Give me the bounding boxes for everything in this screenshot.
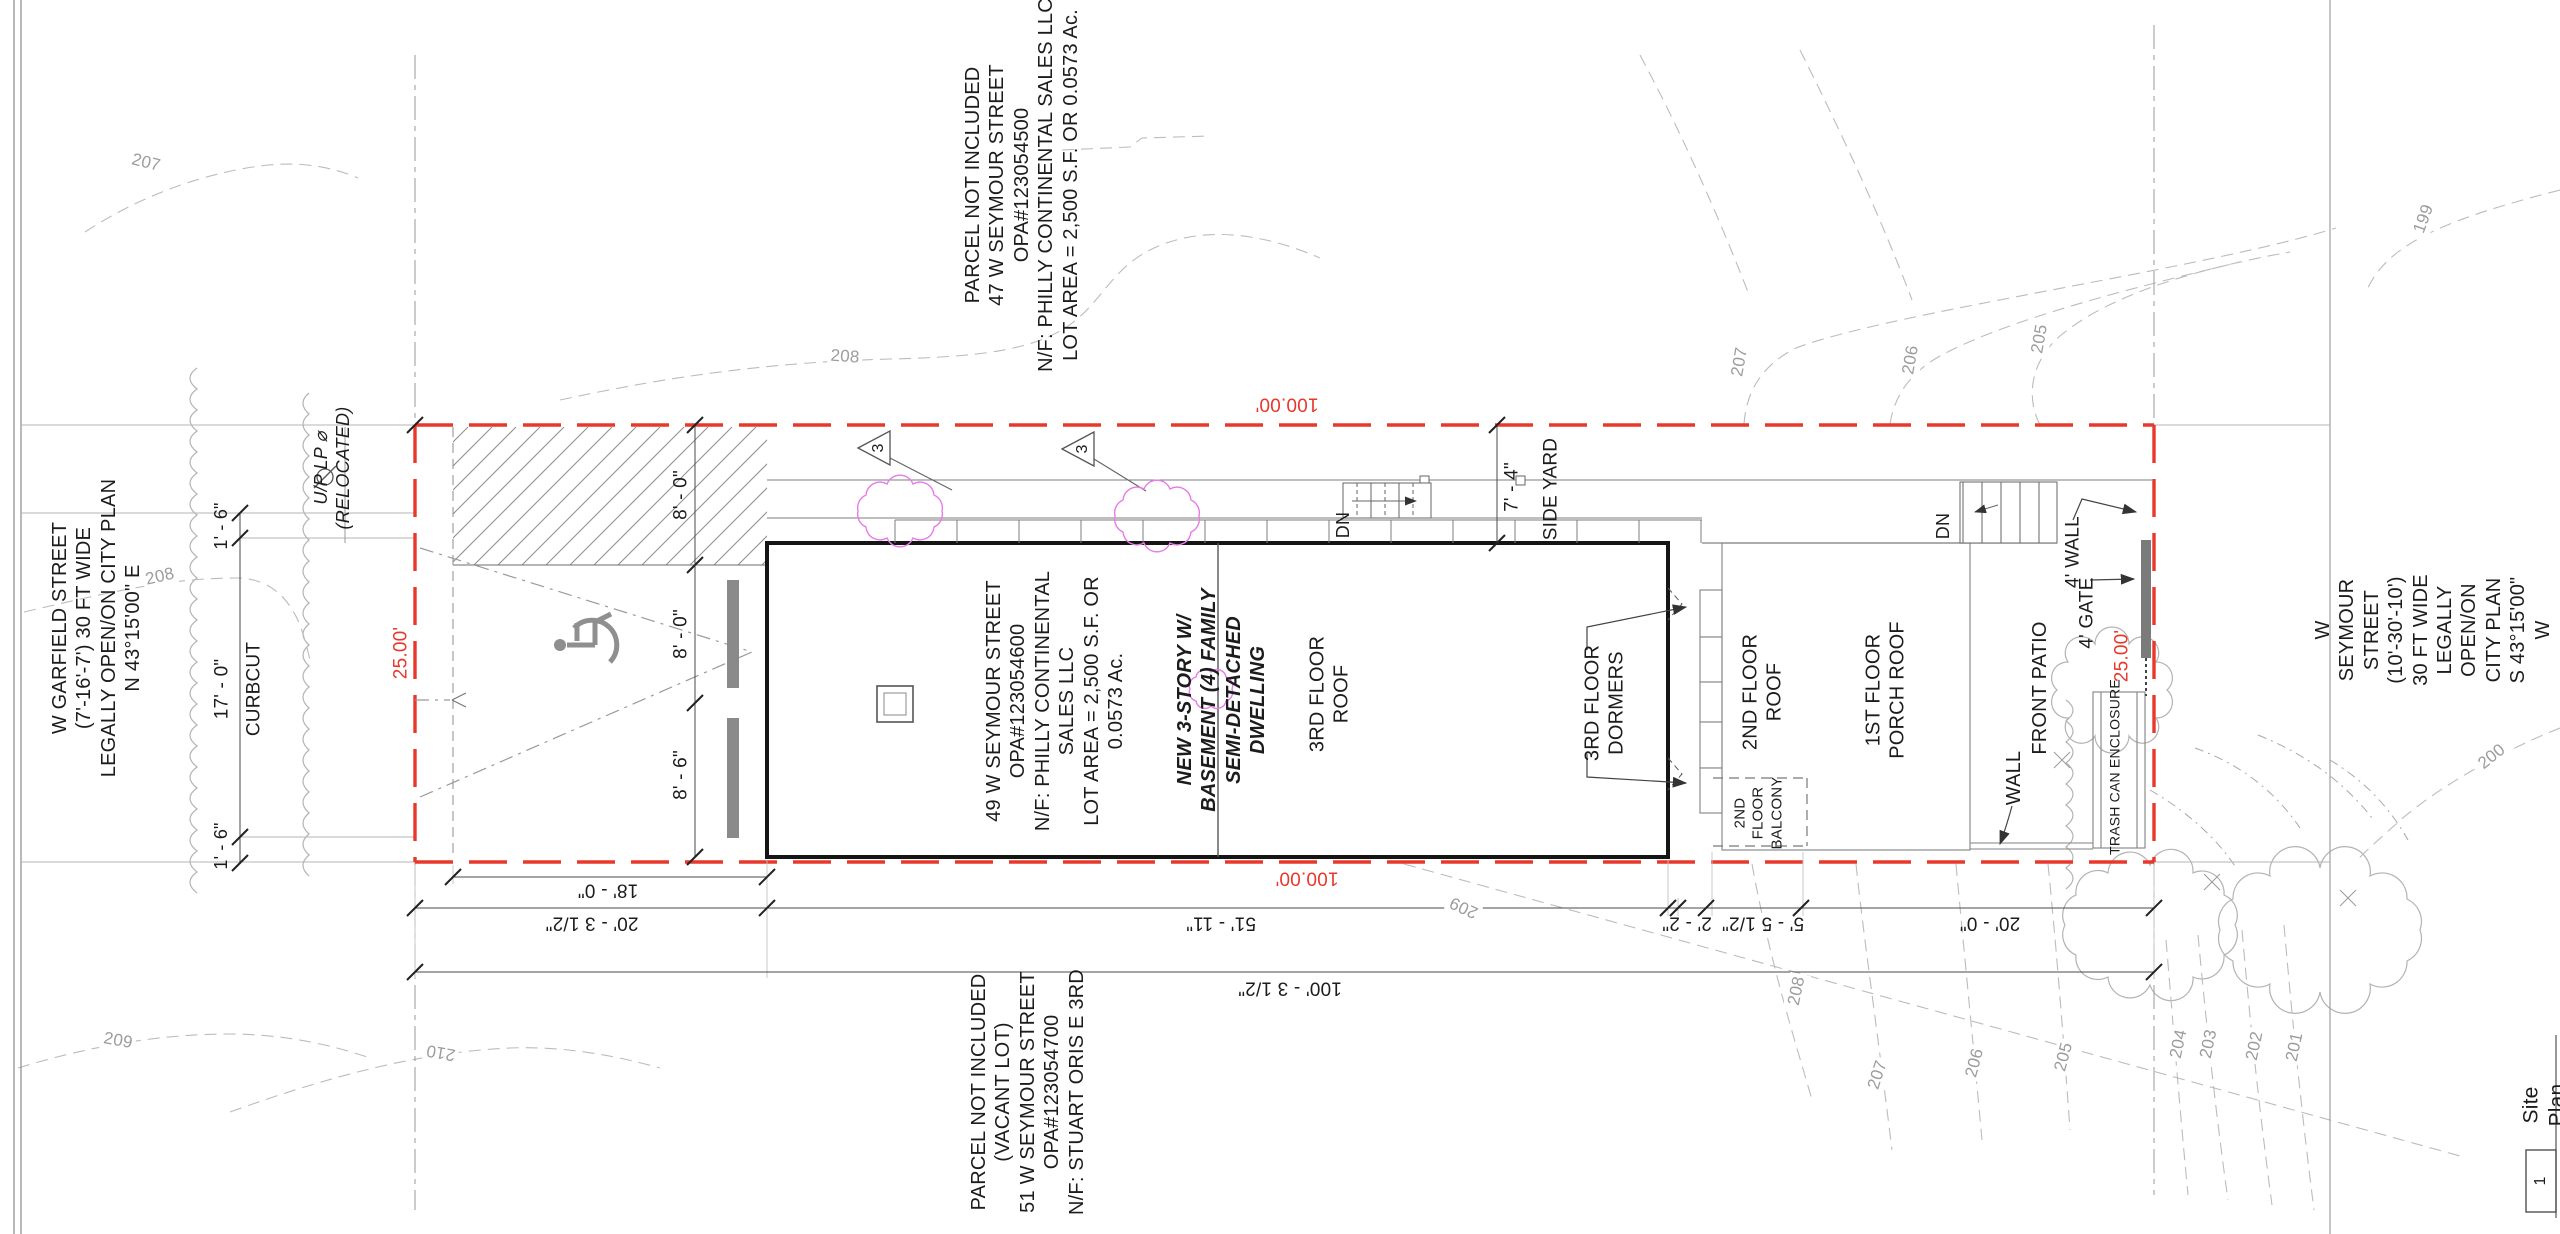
label-2nd-floor-balcony: 2ND FLOOR BALCONY	[1732, 776, 1787, 849]
dim-100-3-half: 100' - 3 1/2"	[1238, 976, 1342, 999]
contour-label-208-n: 208	[827, 345, 863, 368]
dim-8-0-b: 8' - 0"	[669, 609, 692, 659]
step-bars	[727, 580, 739, 838]
sheet-title: Site Plan	[2518, 1084, 2560, 1127]
label-dn-front: DN	[1933, 513, 1955, 539]
side-yard-stair	[1343, 483, 1431, 518]
title-block	[2526, 1035, 2556, 1218]
dim-8-0-a: 8' - 0"	[669, 470, 692, 520]
label-3rd-floor-dormers: 3RD FLOOR DORMERS	[1581, 645, 1630, 761]
dim-100-north: 100.00'	[1255, 392, 1318, 415]
label-wall: WALL	[2002, 751, 2026, 806]
parking-apron-lines	[415, 548, 752, 797]
dwelling-note: NEW 3-STORY W/ BASEMENT (4) FAMILY SEMI-…	[1173, 588, 1271, 811]
revision-flag-3-a: 3	[869, 443, 889, 452]
dim-20-0: 20' - 0"	[1960, 911, 2021, 934]
dim-18-0: 18' - 0"	[578, 878, 639, 901]
dim-5-5-half: 5' - 5 1/2"	[1722, 911, 1804, 934]
dim-1-6-north: 1' - 6"	[211, 502, 233, 549]
tree-marks	[2054, 752, 2356, 906]
label-1st-floor-porch-roof: 1ST FLOOR PORCH ROOF	[1862, 621, 1911, 759]
dim-25-west: 25.00'	[389, 627, 412, 679]
dim-7-4: 7' - 4"	[1500, 462, 1523, 512]
revision-flags	[858, 431, 1094, 466]
dim-25-east: 25.00'	[2110, 630, 2133, 682]
dim-2-2: 2' - 2"	[1662, 911, 1712, 934]
label-front-patio: FRONT PATIO	[2028, 621, 2052, 754]
label-dn-sideyard: DN	[1333, 512, 1355, 538]
label-curbcut: CURBCUT	[242, 642, 265, 736]
dim-100-south: 100.00'	[1275, 866, 1338, 889]
label-3rd-floor-roof: 3RD FLOOR ROOF	[1306, 636, 1355, 752]
dim-20-3-half: 20' - 3 1/2"	[545, 911, 638, 934]
label-utility-pole: U/P LP ⌀ (RELOCATED)	[311, 407, 355, 530]
parcel-note-north: PARCEL NOT INCLUDED 47 W SEYMOUR STREET …	[961, 0, 1083, 372]
label-trash-enclosure: TRASH CAN ENCLOSURE	[2106, 679, 2123, 855]
street-name-garfield: W GARFIELD STREET (7'-16'-7') 30 FT WIDE…	[48, 479, 146, 777]
dim-1-6-south: 1' - 6"	[211, 822, 233, 869]
tree-branch-lines	[2150, 735, 2408, 866]
dim-51-11: 51' - 11"	[1186, 911, 1256, 934]
front-stair	[1960, 482, 2057, 543]
site-plan-sheet: W GARFIELD STREET (7'-16'-7') 30 FT WIDE…	[0, 0, 2560, 1234]
dim-8-6: 8' - 6"	[669, 750, 692, 800]
street-name-seymour: W SEYMOUR STREET (10'-30'-10') 30 FT WID…	[2311, 567, 2555, 694]
subject-parcel-note: 49 W SEYMOUR STREET OPA#123054600 N/F: P…	[982, 571, 1128, 831]
accessible-parking-icon	[554, 614, 617, 662]
sheet-number: 1	[2531, 1176, 2551, 1185]
parking-apron-arrow	[452, 693, 466, 707]
label-4ft-g gate: 4' GATE	[2075, 577, 2098, 648]
label-side-yard: SIDE YARD	[1539, 438, 1562, 540]
revision-flag-3-b: 3	[1073, 444, 1093, 453]
dormer-dashed-marks	[1668, 588, 1682, 790]
dim-17-0: 17' - 0"	[210, 659, 233, 720]
parcel-note-south: PARCEL NOT INCLUDED (VACANT LOT) 51 W SE…	[967, 969, 1089, 1215]
label-2nd-floor-roof: 2ND FLOOR ROOF	[1739, 634, 1788, 750]
wall-and-gate	[2141, 540, 2151, 696]
